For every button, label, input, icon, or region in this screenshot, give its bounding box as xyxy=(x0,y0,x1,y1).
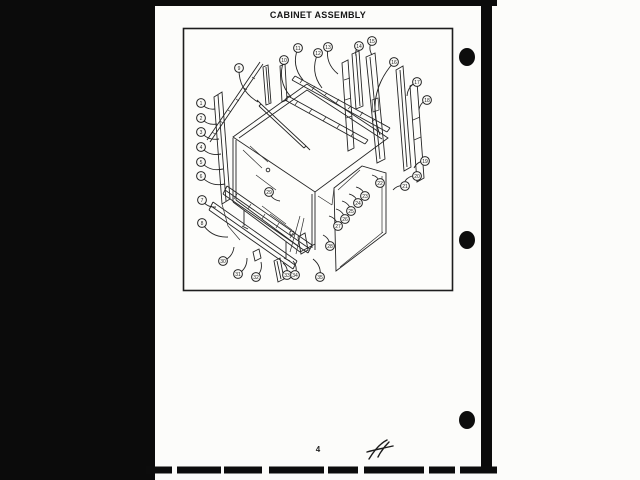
svg-text:19: 19 xyxy=(422,159,428,165)
svg-text:3: 3 xyxy=(200,130,203,136)
svg-text:26: 26 xyxy=(342,217,348,223)
svg-text:15: 15 xyxy=(369,39,375,45)
svg-text:7: 7 xyxy=(201,198,204,204)
svg-text:2: 2 xyxy=(200,116,203,122)
svg-text:28: 28 xyxy=(327,244,333,250)
svg-text:6: 6 xyxy=(200,174,203,180)
svg-text:34: 34 xyxy=(292,273,298,279)
svg-text:14: 14 xyxy=(356,44,362,50)
svg-text:16: 16 xyxy=(391,60,397,66)
svg-text:8: 8 xyxy=(201,221,204,227)
svg-text:27: 27 xyxy=(335,224,341,230)
svg-text:29: 29 xyxy=(266,190,272,196)
svg-text:30: 30 xyxy=(220,259,226,265)
svg-text:25: 25 xyxy=(348,209,354,215)
handwritten-mark xyxy=(367,440,393,459)
svg-text:10: 10 xyxy=(281,58,287,64)
diagram-frame xyxy=(184,29,453,291)
svg-text:17: 17 xyxy=(414,80,420,86)
svg-text:31: 31 xyxy=(235,272,241,278)
svg-text:9: 9 xyxy=(238,66,241,72)
svg-text:18: 18 xyxy=(424,98,430,104)
cabinet-assembly-diagram: 1234567891011121314151617181920212223242… xyxy=(0,0,640,480)
svg-text:5: 5 xyxy=(200,160,203,166)
svg-text:4: 4 xyxy=(200,145,203,151)
svg-text:12: 12 xyxy=(315,51,321,57)
svg-text:21: 21 xyxy=(402,184,408,190)
page-number: 4 xyxy=(312,445,324,454)
svg-text:33: 33 xyxy=(284,273,290,279)
svg-text:32: 32 xyxy=(253,275,259,281)
svg-text:13: 13 xyxy=(325,45,331,51)
svg-text:22: 22 xyxy=(377,181,383,187)
svg-text:1: 1 xyxy=(200,101,203,107)
svg-text:23: 23 xyxy=(362,194,368,200)
svg-text:35: 35 xyxy=(317,275,323,281)
svg-text:24: 24 xyxy=(355,201,361,207)
svg-text:11: 11 xyxy=(295,46,300,52)
svg-text:20: 20 xyxy=(414,174,420,180)
